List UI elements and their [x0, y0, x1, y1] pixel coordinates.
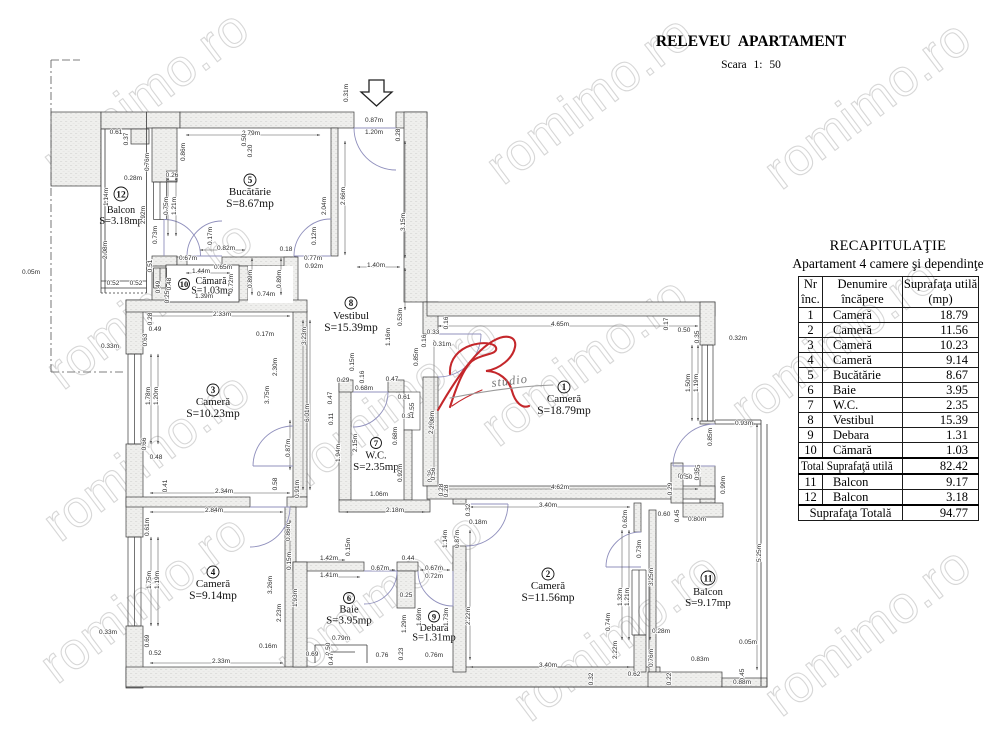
svg-text:5: 5 [248, 175, 253, 185]
svg-text:3.23m: 3.23m [301, 327, 308, 345]
svg-text:1.44m: 1.44m [192, 268, 210, 275]
svg-text:2.04m: 2.04m [321, 197, 328, 215]
svg-text:0.83m: 0.83m [691, 656, 709, 663]
svg-text:0.62: 0.62 [628, 671, 641, 678]
svg-text:0.35: 0.35 [694, 467, 701, 480]
svg-text:0.45: 0.45 [674, 509, 681, 522]
svg-text:0.44: 0.44 [402, 555, 415, 562]
svg-text:0.05m: 0.05m [22, 269, 40, 276]
svg-text:0.69: 0.69 [144, 634, 151, 647]
svg-text:0.28m: 0.28m [652, 628, 670, 635]
svg-text:1.40m: 1.40m [367, 262, 385, 269]
svg-text:0.92m: 0.92m [305, 263, 323, 270]
svg-text:0.76m: 0.76m [648, 649, 655, 667]
svg-text:0.75m: 0.75m [163, 197, 170, 215]
svg-text:4.65m: 4.65m [551, 321, 569, 328]
svg-text:0.47: 0.47 [386, 376, 399, 383]
svg-text:0.49: 0.49 [155, 280, 162, 293]
svg-text:W.C.: W.C. [365, 451, 386, 462]
svg-text:0.61: 0.61 [110, 129, 123, 136]
svg-text:0.76m: 0.76m [144, 153, 151, 171]
svg-text:0.17m: 0.17m [207, 227, 214, 245]
svg-text:0.48: 0.48 [150, 454, 163, 461]
svg-text:0.25: 0.25 [164, 290, 171, 303]
svg-text:0.47: 0.47 [328, 652, 335, 665]
svg-text:3.26m: 3.26m [267, 576, 274, 594]
svg-text:0.93m: 0.93m [735, 420, 753, 427]
svg-text:0.50: 0.50 [680, 474, 693, 481]
svg-text:0.22: 0.22 [666, 672, 673, 685]
svg-text:0.32: 0.32 [465, 503, 472, 516]
svg-text:S=2.35mp: S=2.35mp [353, 461, 399, 473]
svg-text:0.49: 0.49 [149, 326, 162, 333]
svg-text:0.73m: 0.73m [636, 540, 643, 558]
svg-text:0.31m: 0.31m [343, 84, 350, 102]
svg-text:0.20: 0.20 [247, 144, 254, 157]
svg-text:3.75m: 3.75m [264, 386, 271, 404]
svg-text:0.74m: 0.74m [605, 613, 612, 631]
svg-text:1.42m: 1.42m [320, 555, 338, 562]
svg-text:0.92m: 0.92m [397, 464, 404, 482]
svg-text:1.20m: 1.20m [365, 129, 383, 136]
svg-text:1.94m: 1.94m [335, 444, 342, 462]
svg-text:1.14m: 1.14m [103, 188, 110, 206]
svg-text:0.89m: 0.89m [276, 270, 283, 288]
svg-text:0.32: 0.32 [588, 672, 595, 685]
svg-text:0.29: 0.29 [337, 377, 350, 384]
svg-text:2.30m: 2.30m [272, 358, 279, 376]
svg-text:3.25m: 3.25m [648, 568, 655, 586]
svg-text:1.29m: 1.29m [401, 615, 408, 633]
svg-text:2.33m: 2.33m [213, 311, 231, 318]
svg-text:1.39m: 1.39m [195, 293, 213, 300]
svg-text:Vestibul: Vestibul [333, 310, 369, 322]
svg-text:0.33: 0.33 [427, 329, 440, 336]
svg-text:S=11.56mp: S=11.56mp [521, 592, 574, 604]
svg-text:0.72m: 0.72m [425, 573, 443, 580]
svg-text:1.21m: 1.21m [624, 588, 631, 606]
svg-text:0.17: 0.17 [663, 317, 670, 330]
svg-text:0.12m: 0.12m [311, 227, 318, 245]
svg-text:0.26: 0.26 [166, 172, 179, 179]
svg-text:1.16m: 1.16m [385, 328, 392, 346]
svg-text:2.66m: 2.66m [340, 187, 347, 205]
svg-text:2.22m: 2.22m [612, 641, 619, 659]
svg-text:0.52: 0.52 [107, 280, 120, 287]
svg-text:Balcon: Balcon [107, 205, 135, 216]
svg-text:0.23: 0.23 [398, 647, 405, 660]
svg-text:3.15m: 3.15m [400, 213, 407, 231]
svg-text:0.05m: 0.05m [739, 639, 757, 646]
svg-text:0.76m: 0.76m [425, 652, 443, 659]
svg-text:0.15m: 0.15m [349, 353, 356, 371]
svg-text:0.77m: 0.77m [304, 255, 322, 262]
svg-text:1.14m: 1.14m [442, 530, 449, 548]
svg-text:1.21m: 1.21m [171, 197, 178, 215]
svg-text:2.33m: 2.33m [212, 658, 230, 665]
svg-text:S=3.95mp: S=3.95mp [326, 615, 372, 627]
svg-text:0.67m: 0.67m [179, 255, 197, 262]
svg-text:0.88m: 0.88m [733, 679, 751, 686]
svg-text:0.35: 0.35 [694, 330, 701, 343]
svg-text:8: 8 [349, 298, 354, 308]
svg-text:romimo.ro: romimo.ro [502, 540, 731, 733]
svg-text:1.93m: 1.93m [292, 589, 299, 607]
svg-text:0.91m: 0.91m [294, 480, 301, 498]
svg-text:4: 4 [211, 567, 216, 577]
svg-text:0.32m: 0.32m [729, 335, 747, 342]
svg-text:0.58: 0.58 [272, 477, 279, 490]
svg-text:0.51: 0.51 [147, 259, 154, 272]
svg-text:0.61m: 0.61m [144, 518, 151, 536]
svg-text:S=18.79mp: S=18.79mp [537, 405, 591, 417]
svg-text:2: 2 [546, 569, 551, 579]
svg-text:3.40m: 3.40m [539, 502, 557, 509]
svg-text:9: 9 [432, 612, 436, 622]
svg-text:0.72m: 0.72m [228, 274, 235, 292]
svg-text:3.40m: 3.40m [539, 662, 557, 669]
svg-text:0.16m: 0.16m [259, 643, 277, 650]
svg-text:5.25m: 5.25m [756, 544, 763, 562]
svg-text:0.11: 0.11 [328, 413, 335, 426]
svg-text:0.16: 0.16 [443, 316, 450, 329]
svg-text:0.99m: 0.99m [720, 476, 727, 494]
svg-text:12: 12 [116, 190, 126, 200]
svg-text:0.66: 0.66 [141, 437, 148, 450]
svg-text:3: 3 [211, 385, 216, 395]
svg-text:0.48: 0.48 [166, 277, 173, 290]
svg-text:S=1.31mp: S=1.31mp [412, 633, 456, 644]
svg-text:10: 10 [180, 279, 189, 289]
svg-text:S=9.17mp: S=9.17mp [685, 597, 731, 609]
svg-text:2.34m: 2.34m [215, 488, 233, 495]
svg-text:1.19m: 1.19m [154, 571, 161, 589]
svg-text:6.01m: 6.01m [304, 404, 311, 422]
svg-text:1.75m: 1.75m [146, 571, 153, 589]
svg-text:0.16: 0.16 [359, 370, 366, 383]
svg-text:0.67m: 0.67m [371, 565, 389, 572]
svg-text:0.68m: 0.68m [392, 427, 399, 445]
svg-text:6: 6 [347, 593, 351, 603]
svg-text:0.86m: 0.86m [285, 523, 292, 541]
svg-text:0.80m: 0.80m [688, 516, 706, 523]
svg-text:S=15.39mp: S=15.39mp [324, 322, 378, 334]
svg-text:S=9.14mp: S=9.14mp [189, 590, 237, 602]
svg-text:0.50: 0.50 [678, 327, 691, 334]
svg-text:0.63: 0.63 [142, 333, 149, 346]
svg-text:0.86m: 0.86m [180, 143, 187, 161]
svg-text:0.31m: 0.31m [433, 341, 451, 348]
svg-text:2.23m: 2.23m [276, 604, 283, 622]
svg-text:0.16: 0.16 [421, 334, 428, 347]
svg-text:0.28: 0.28 [395, 128, 402, 141]
svg-text:0.18m: 0.18m [469, 519, 487, 526]
svg-text:0.62m: 0.62m [622, 510, 629, 528]
svg-text:1.32m: 1.32m [617, 588, 624, 606]
svg-text:0.25: 0.25 [400, 592, 413, 599]
svg-text:2.22m: 2.22m [465, 607, 472, 625]
svg-text:Cameră: Cameră [196, 396, 230, 408]
svg-text:0.29: 0.29 [667, 482, 674, 495]
svg-text:0.74m: 0.74m [257, 291, 275, 298]
svg-text:0.31: 0.31 [402, 413, 415, 420]
svg-text:0.73m: 0.73m [152, 226, 159, 244]
svg-text:2.08m: 2.08m [429, 411, 436, 429]
svg-text:romimo.ro: romimo.ro [753, 535, 982, 728]
svg-text:0.61: 0.61 [398, 394, 411, 401]
svg-text:0.79m: 0.79m [332, 635, 350, 642]
svg-text:2.08m: 2.08m [102, 241, 109, 259]
svg-text:11: 11 [704, 574, 713, 584]
svg-text:0.60: 0.60 [658, 511, 671, 518]
svg-text:0.41: 0.41 [162, 479, 169, 492]
svg-text:0.89m: 0.89m [247, 270, 254, 288]
svg-text:S=10.23mp: S=10.23mp [186, 408, 240, 420]
svg-text:0.53m: 0.53m [397, 308, 404, 326]
svg-text:Cameră: Cameră [196, 578, 230, 590]
svg-text:0.18: 0.18 [280, 246, 293, 253]
svg-text:1.50m: 1.50m [685, 374, 692, 392]
svg-text:1.06m: 1.06m [370, 491, 388, 498]
svg-text:0.69: 0.69 [306, 651, 319, 658]
svg-text:0.33m: 0.33m [101, 343, 119, 350]
svg-text:0.82m: 0.82m [217, 245, 235, 252]
svg-text:0.67m: 0.67m [425, 565, 443, 572]
svg-text:0.50: 0.50 [241, 133, 248, 146]
svg-text:4.62m: 4.62m [551, 484, 569, 491]
svg-text:0.52: 0.52 [149, 650, 162, 657]
svg-text:Cameră: Cameră [531, 580, 565, 592]
svg-text:0.33m: 0.33m [99, 629, 117, 636]
svg-text:1.69m: 1.69m [416, 608, 423, 626]
svg-text:2.18m: 2.18m [386, 507, 404, 514]
svg-text:S=8.67mp: S=8.67mp [226, 198, 274, 210]
svg-text:0.15m: 0.15m [286, 552, 293, 570]
svg-text:0.17m: 0.17m [256, 331, 274, 338]
svg-text:0.65m: 0.65m [214, 264, 232, 271]
svg-text:0.87m: 0.87m [454, 530, 461, 548]
svg-text:2.84m: 2.84m [205, 507, 223, 514]
svg-text:S=3.18mp: S=3.18mp [99, 216, 143, 227]
svg-text:0.85m: 0.85m [707, 428, 714, 446]
svg-text:1: 1 [562, 382, 567, 392]
svg-text:0.28m: 0.28m [124, 175, 142, 182]
svg-text:1.73m: 1.73m [443, 608, 450, 626]
svg-text:2.15m: 2.15m [352, 434, 359, 452]
svg-text:Cameră: Cameră [547, 393, 581, 405]
svg-text:1.19m: 1.19m [693, 374, 700, 392]
svg-text:2.92m: 2.92m [140, 206, 147, 224]
svg-text:0.68m: 0.68m [355, 385, 373, 392]
svg-text:0.52: 0.52 [130, 280, 143, 287]
svg-text:1.78m: 1.78m [145, 387, 152, 405]
svg-text:0.37: 0.37 [123, 132, 130, 145]
svg-text:0.28: 0.28 [147, 312, 154, 325]
svg-text:0.15m: 0.15m [345, 538, 352, 556]
svg-text:0.28: 0.28 [438, 483, 445, 496]
svg-text:Bucătărie: Bucătărie [229, 186, 271, 198]
svg-text:0.87m: 0.87m [365, 117, 383, 124]
svg-text:1.41m: 1.41m [320, 572, 338, 579]
svg-text:1.20m: 1.20m [153, 387, 160, 405]
svg-text:0.85m: 0.85m [413, 348, 420, 366]
svg-text:0.87m: 0.87m [285, 439, 292, 457]
svg-text:0.47: 0.47 [327, 391, 334, 404]
svg-text:0.76: 0.76 [376, 652, 389, 659]
svg-text:0.56: 0.56 [430, 467, 437, 480]
